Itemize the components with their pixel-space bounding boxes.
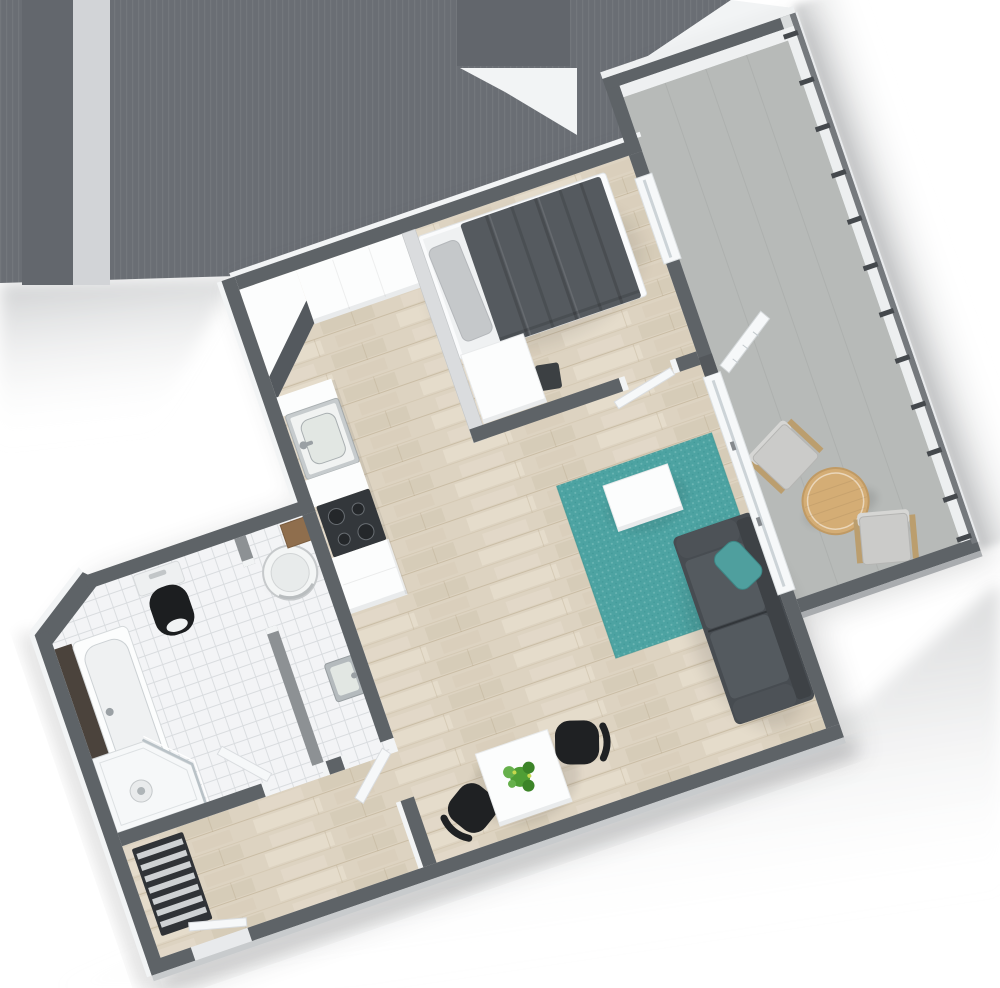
neighbor-block xyxy=(457,0,570,66)
floor-plan-image xyxy=(0,0,1000,988)
chair-seat xyxy=(859,513,911,565)
neighbor-wall-band-dark xyxy=(22,0,73,285)
outdoor-chair-south xyxy=(853,508,919,565)
neighbor-wall-band-light xyxy=(73,0,110,285)
